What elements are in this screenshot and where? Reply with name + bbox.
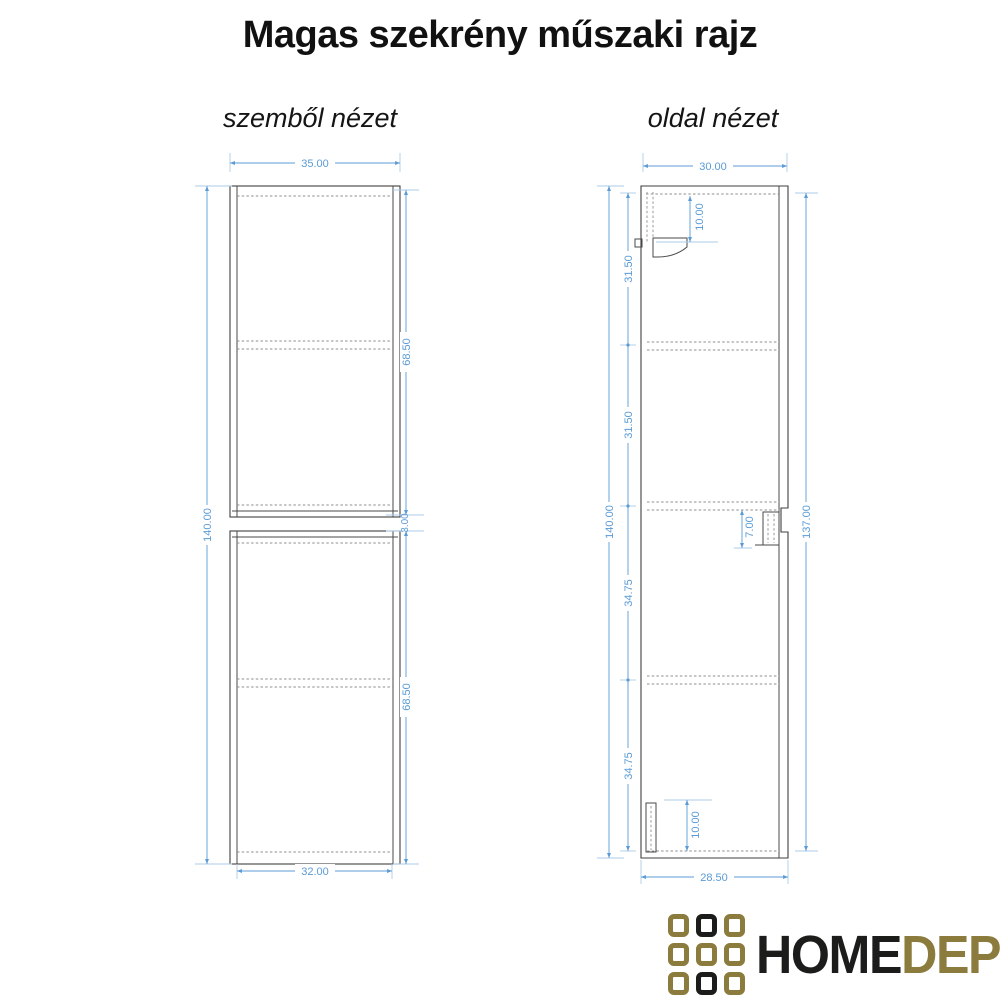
logo-grid-icon [668,914,745,995]
dim-side-seg3: 34.75 [623,579,635,607]
dim-side-bracket-bottom: 10.00 [690,811,702,839]
dim-side-width-bottom: 28.50 [700,872,728,884]
logo-grid-cell [668,972,689,995]
dim-side-seg1: 31.50 [623,255,635,283]
logo-grid-cell [696,972,717,995]
side-view-drawing [635,186,788,858]
cabinet-technical-drawing: 35.00 140.00 68.50 3.00 68.50 32.0 [0,0,1000,1000]
logo-wordmark: HOMEDEPO [756,928,1000,982]
dim-side-seg2: 31.50 [623,411,635,439]
logo-grid-cell [724,972,745,995]
dim-front-lower-section: 68.50 [401,683,413,711]
dim-front-upper-section: 68.50 [401,338,413,366]
dim-front-height: 140.00 [202,508,214,542]
dim-front-width-bottom: 32.00 [301,866,329,878]
technical-drawing-page: Magas szekrény műszaki rajz szemből néze… [0,0,1000,1000]
dim-front-width-top: 35.00 [301,158,329,170]
dim-side-front-height: 137.00 [801,505,813,539]
front-view-dimensions: 35.00 140.00 68.50 3.00 68.50 32.0 [195,153,424,879]
logo-grid-cell [696,943,717,966]
dim-side-bracket-top: 10.00 [694,203,706,231]
logo-grid-cell [696,914,717,937]
dim-side-handle-depth: 7.00 [744,516,756,537]
logo-grid-cell [724,914,745,937]
dim-side-width-top: 30.00 [699,161,727,173]
dim-side-seg4: 34.75 [623,752,635,780]
logo-text-home: HOME [756,925,901,985]
logo-grid-cell [724,943,745,966]
homedepo-logo: HOMEDEPO [668,913,1000,1000]
logo-grid-cell [668,943,689,966]
logo-text-depo: DEPO [901,925,1000,985]
dim-front-gap: 3.00 [400,513,411,533]
logo-grid-cell [668,914,689,937]
front-view-drawing [230,186,400,864]
side-view-dimensions: 30.00 140.00 31.50 31.50 34.75 34.7 [597,153,818,884]
dim-side-height: 140.00 [604,505,616,539]
